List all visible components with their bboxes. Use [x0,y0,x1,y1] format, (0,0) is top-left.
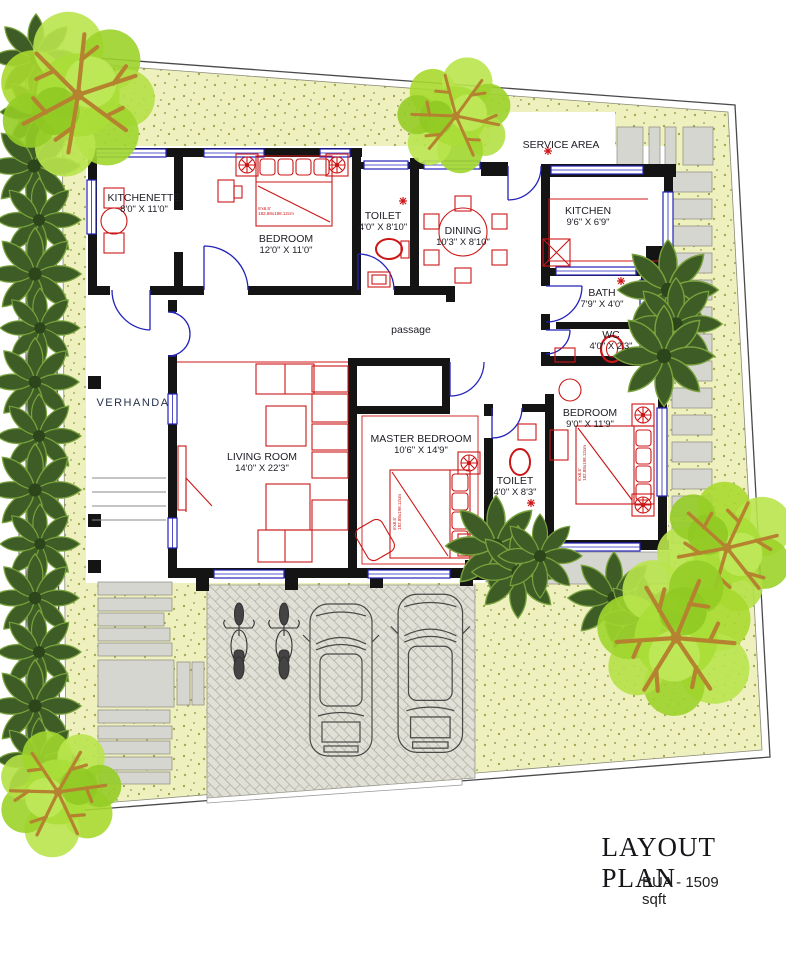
room-dims: 10'3" X 8'10" [436,238,490,249]
room-name: KITCHEN [565,205,611,217]
room-label-master-bedroom: MASTER BEDROOM 10'6" X 14'9" [371,433,472,457]
floor-plan-drawing [0,0,786,965]
room-dims: 9'6" X 6'9" [565,218,611,229]
bed-note: 6'x6.5' 182.88x198.12cm [393,494,403,530]
room-name: MASTER BEDROOM [371,433,472,445]
room-label-kitchenette: KITCHENETTE 8'0" X 11'0" [108,192,181,216]
room-name: BEDROOM [563,407,617,419]
room-label-bedroom1: BEDROOM 12'0" X 11'0" [259,233,313,257]
room-dims: 4'0" X 2'3" [589,342,632,353]
room-label-kitchen: KITCHEN 9'6" X 6'9" [565,205,611,229]
driveway-paving [207,585,475,798]
room-label-dining: DINING 10'3" X 8'10" [436,225,490,249]
room-dims: 10'6" X 14'9" [371,446,472,457]
room-name: TOILET [359,210,407,222]
room-dims: 4'0" X 8'10" [359,223,407,234]
bua-subtitle: BUA - 1509 sqft [642,874,738,908]
bed-note: 6'x6.5' 182.88x198.12cm [258,207,294,217]
room-label-living-room: LIVING ROOM 14'0" X 22'3" [227,451,297,475]
room-name: BATH [580,287,623,299]
room-label-toilet1: TOILET 4'0" X 8'10" [359,210,407,234]
layout-plan-canvas: KITCHENETTE 8'0" X 11'0" BEDROOM 12'0" X… [0,0,786,965]
room-name: BEDROOM [259,233,313,245]
room-name: KITCHENETTE [108,192,181,204]
room-dims: 7'9" X 4'0" [580,300,623,311]
verhanda-label: VERHANDA [96,397,169,409]
room-name: DINING [436,225,490,237]
passage-label: passage [391,324,431,336]
room-name: TOILET [493,475,536,487]
room-dims: 9'0" X 11'9" [563,420,617,431]
room-label-toilet2: TOILET 4'0" X 8'3" [493,475,536,499]
room-name: LIVING ROOM [227,451,297,463]
room-dims: 12'0" X 11'0" [259,246,313,257]
room-dims: 4'0" X 8'3" [493,488,536,499]
bed-note: 6'x6.5' 182.88x198.12cm [578,445,588,481]
service-area-label: SERVICE AREA [523,139,600,151]
room-dims: 14'0" X 22'3" [227,464,297,475]
room-label-bedroom2: BEDROOM 9'0" X 11'9" [563,407,617,431]
room-label-bath: BATH 7'9" X 4'0" [580,287,623,311]
room-label-wc: WC 4'0" X 2'3" [589,329,632,353]
room-name: WC [589,329,632,341]
room-dims: 8'0" X 11'0" [108,205,181,216]
